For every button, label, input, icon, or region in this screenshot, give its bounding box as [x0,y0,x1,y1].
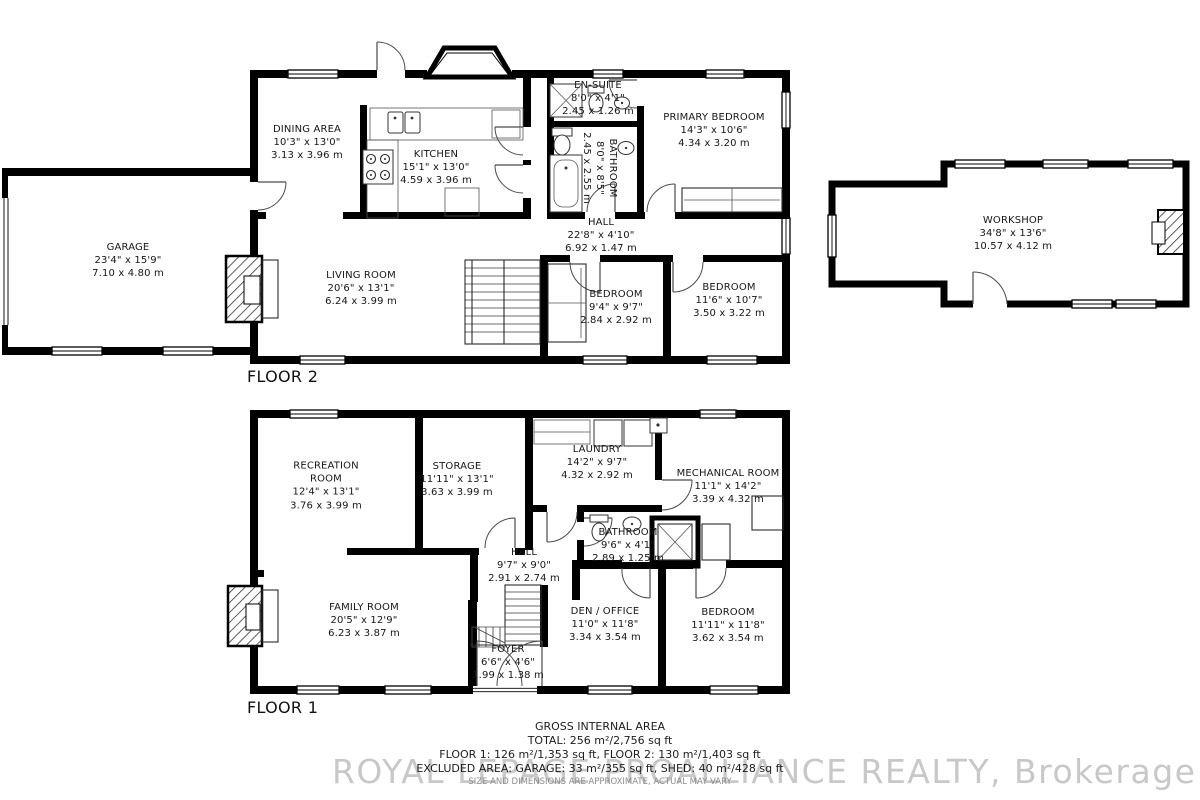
area-title: GROSS INTERNAL AREA [300,720,900,734]
room-label-dining: DINING AREA 10'3" x 13'0" 3.13 x 3.96 m [271,123,343,163]
floor1-tag: FLOOR 1 [247,698,318,717]
room-label-ensuite: EN-SUITE 8'0" x 4'1" 2.45 x 1.26 m [562,79,634,119]
patio-door [377,42,405,78]
area-floors: FLOOR 1: 126 m²/1,353 sq ft, FLOOR 2: 13… [300,748,900,762]
area-excluded: EXCLUDED AREA: GARAGE: 33 m²/355 sq ft, … [300,762,900,776]
room-label-den-office: DEN / OFFICE 11'0" x 11'8" 3.34 x 3.54 m [569,605,641,645]
area-total: TOTAL: 256 m²/2,756 sq ft [300,734,900,748]
room-label-bathroom-f2: BATHROOM 8'0" x 8'5" 2.45 x 2.55 m [579,132,619,204]
bay-window [427,48,512,77]
toilet [552,128,572,155]
room-label-storage: STORAGE 11'11" x 13'1" 3.63 x 3.99 m [420,460,494,500]
garage-entry-door [250,182,286,210]
area-disclaimer: SIZE AND DIMENSIONS ARE APPROXIMATE, ACT… [300,777,900,788]
room-label-kitchen: KITCHEN 15'1" x 13'0" 4.59 x 3.96 m [400,148,472,188]
laundry-appliances [534,418,667,446]
kitchen-sink [388,112,420,133]
bathtub [550,155,582,212]
room-label-workshop: WORKSHOP 34'8" x 13'6" 10.57 x 4.12 m [974,214,1052,254]
room-label-mechanical: MECHANICAL ROOM 11'1" x 14'2" 3.39 x 4.3… [677,467,780,507]
fireplace [226,256,278,322]
primary-closet [682,188,782,212]
room-label-hall-f1: HALL 9'7" x 9'0" 2.91 x 2.74 m [488,546,560,586]
room-label-foyer: FOYER 6'6" x 4'6" 1.99 x 1.38 m [472,643,544,683]
room-label-bathroom-f1: BATHROOM 9'6" x 4'1" 2.89 x 1.25 m [592,526,664,566]
room-label-hall-f2: HALL 22'8" x 4'10" 6.92 x 1.47 m [565,216,637,256]
floor2-plan [2,42,790,364]
room-label-laundry: LAUNDRY 14'2" x 9'7" 4.32 x 2.92 m [561,443,633,483]
room-label-bedroom-f1: BEDROOM 11'11" x 11'8" 3.62 x 3.54 m [691,606,765,646]
room-label-bedroom2-f2: BEDROOM 11'6" x 10'7" 3.50 x 3.22 m [693,281,765,321]
room-label-recreation: RECREATION ROOM 12'4" x 13'1" 3.76 x 3.9… [283,460,369,513]
room-label-bedroom1-f2: BEDROOM 9'4" x 9'7" 2.84 x 2.92 m [580,288,652,328]
floorplan-canvas: GARAGE 23'4" x 15'9" 7.10 x 4.80 m DININ… [0,0,1200,800]
area-summary: GROSS INTERNAL AREA TOTAL: 256 m²/2,756 … [300,720,900,788]
room-label-family-room: FAMILY ROOM 20'5" x 12'9" 6.23 x 3.87 m [328,601,400,641]
stove [363,150,393,184]
room-label-primary-bedroom: PRIMARY BEDROOM 14'3" x 10'6" 4.34 x 3.2… [663,111,764,151]
floorplan-drawing [0,0,1200,800]
room-label-living-room: LIVING ROOM 20'6" x 13'1" 6.24 x 3.99 m [325,269,397,309]
bathroom-sink [618,142,634,155]
floor2-tag: FLOOR 2 [247,367,318,386]
floor1-fireplace [228,586,278,646]
room-label-garage: GARAGE 23'4" x 15'9" 7.10 x 4.80 m [92,241,164,281]
floor2-stairs [465,260,540,344]
floor1-stairs [470,585,541,647]
